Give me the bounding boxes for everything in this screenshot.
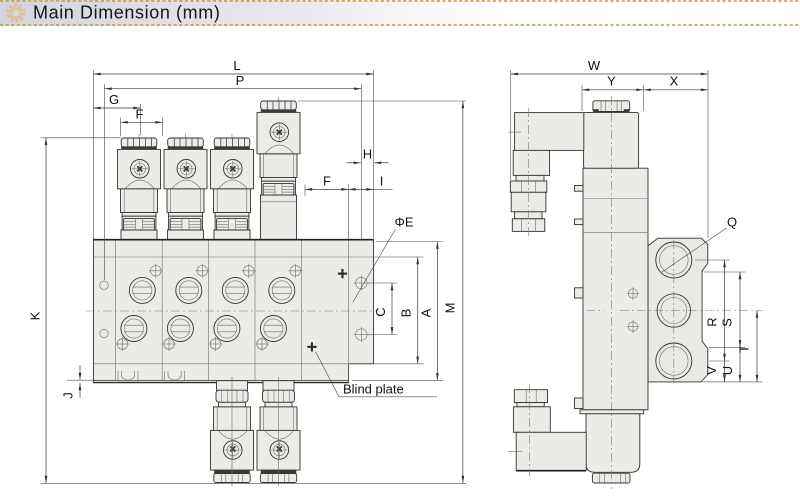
svg-text:ΦE: ΦE: [394, 215, 413, 230]
svg-text:F: F: [323, 174, 331, 189]
svg-text:B: B: [399, 309, 414, 318]
svg-text:K: K: [28, 311, 43, 320]
svg-text:F: F: [136, 107, 144, 122]
svg-text:X: X: [670, 74, 679, 89]
svg-text:I: I: [380, 174, 384, 189]
svg-text:T: T: [737, 345, 752, 353]
svg-text:U: U: [720, 366, 735, 375]
svg-text:W: W: [588, 58, 601, 73]
svg-text:C: C: [373, 307, 388, 316]
svg-text:J: J: [61, 392, 76, 399]
svg-text:P: P: [236, 73, 245, 88]
svg-text:Main Dimension (mm): Main Dimension (mm): [33, 3, 220, 23]
svg-text:H: H: [363, 147, 372, 162]
svg-text:L: L: [233, 58, 240, 73]
svg-text:R: R: [705, 317, 720, 326]
svg-text:A: A: [419, 308, 434, 317]
svg-text:G: G: [109, 92, 119, 107]
svg-text:V: V: [704, 366, 719, 375]
svg-text:Y: Y: [607, 74, 616, 89]
svg-text:S: S: [720, 318, 735, 327]
svg-text:M: M: [443, 303, 458, 314]
svg-text:Blind plate: Blind plate: [343, 382, 404, 397]
svg-text:Q: Q: [727, 215, 737, 230]
